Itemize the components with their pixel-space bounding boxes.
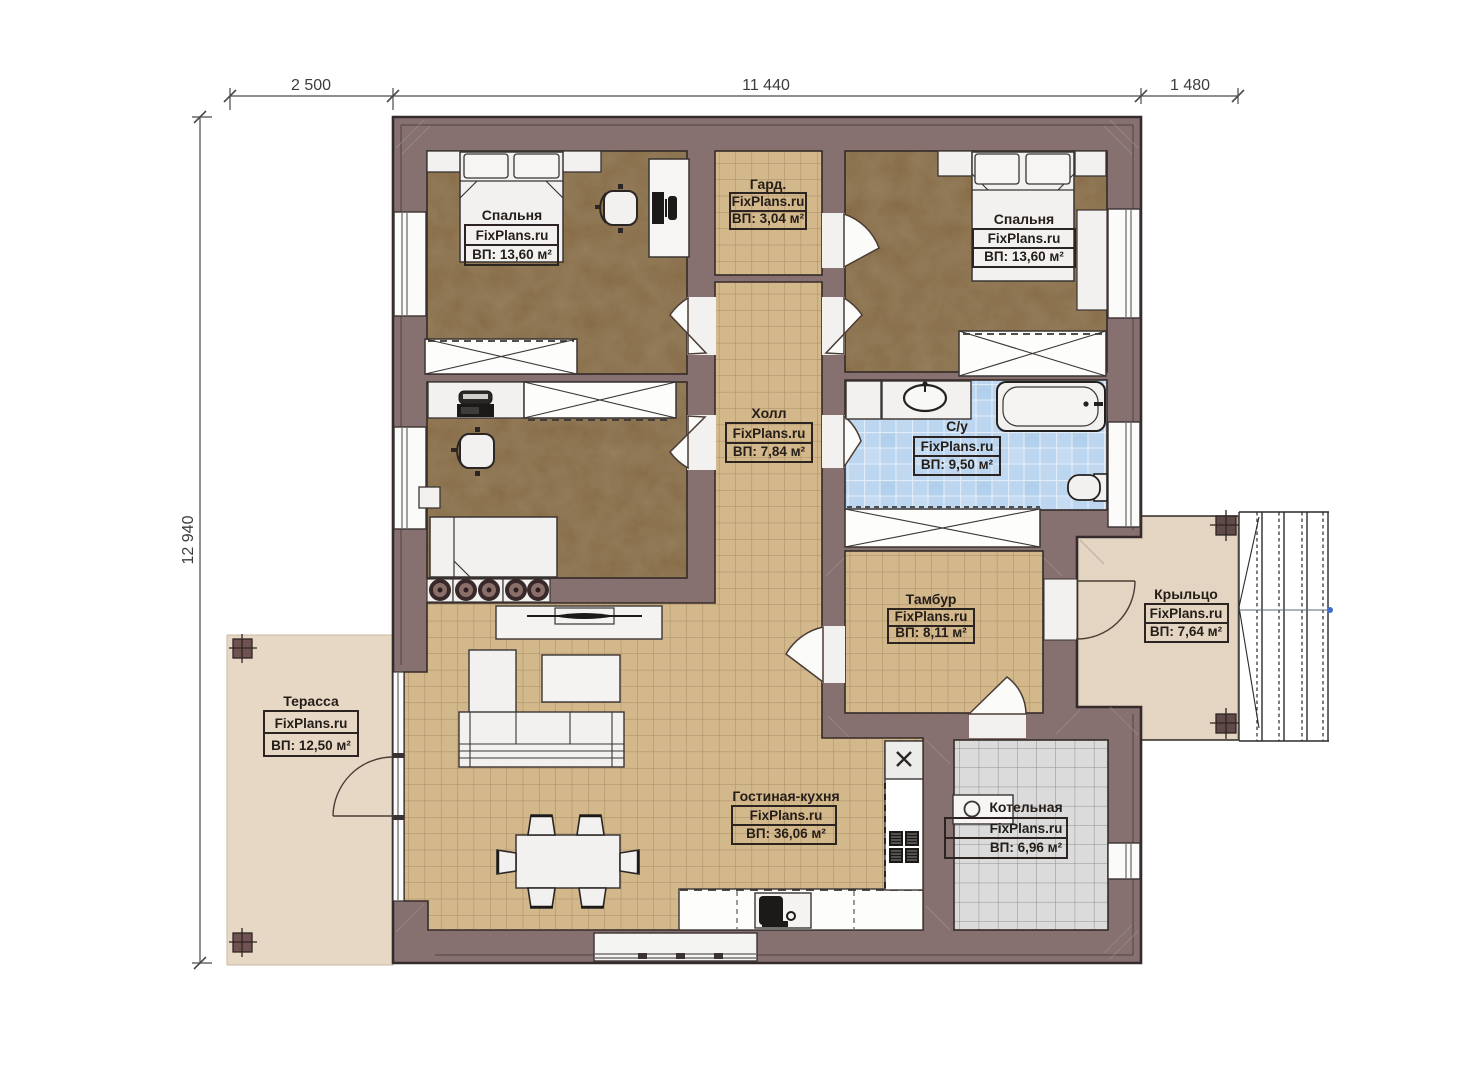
svg-text:Гостиная-кухня: Гостиная-кухня [732,788,839,804]
svg-text:ВП: 12,50 м²: ВП: 12,50 м² [271,738,351,753]
svg-text:Тамбур: Тамбур [906,591,957,607]
svg-text:Котельная: Котельная [989,799,1062,815]
svg-text:Крыльцо: Крыльцо [1154,586,1218,602]
svg-text:ВП: 7,64 м²: ВП: 7,64 м² [1150,624,1223,639]
svg-text:ВП: 36,06 м²: ВП: 36,06 м² [746,826,826,841]
svg-text:2 500: 2 500 [291,77,331,94]
svg-text:ВП: 13,60 м²: ВП: 13,60 м² [472,247,552,262]
svg-text:FixPlans.ru: FixPlans.ru [733,426,806,441]
svg-text:Терасса: Терасса [283,693,339,709]
svg-text:FixPlans.ru: FixPlans.ru [476,228,549,243]
svg-text:FixPlans.ru: FixPlans.ru [921,439,994,454]
svg-text:Спальня: Спальня [482,207,542,223]
svg-text:FixPlans.ru: FixPlans.ru [990,821,1063,836]
svg-text:Холл: Холл [751,405,786,421]
svg-text:12 940: 12 940 [180,515,197,564]
svg-text:FixPlans.ru: FixPlans.ru [732,194,805,209]
svg-text:ВП: 3,04 м²: ВП: 3,04 м² [732,211,805,226]
svg-text:FixPlans.ru: FixPlans.ru [750,808,823,823]
svg-text:ВП: 9,50 м²: ВП: 9,50 м² [921,457,994,472]
svg-text:FixPlans.ru: FixPlans.ru [1150,606,1223,621]
svg-text:11 440: 11 440 [742,77,790,94]
svg-text:ВП: 13,60 м²: ВП: 13,60 м² [984,249,1064,264]
svg-text:Гард.: Гард. [750,176,787,192]
svg-text:FixPlans.ru: FixPlans.ru [275,716,348,731]
svg-text:ВП: 7,84 м²: ВП: 7,84 м² [733,444,806,459]
svg-text:ВП: 8,11 м²: ВП: 8,11 м² [895,625,967,640]
svg-text:С/у: С/у [946,418,968,434]
svg-text:FixPlans.ru: FixPlans.ru [988,231,1061,246]
svg-text:1 480: 1 480 [1170,77,1210,94]
svg-text:FixPlans.ru: FixPlans.ru [895,609,968,624]
svg-text:ВП: 6,96 м²: ВП: 6,96 м² [990,840,1063,855]
svg-text:Спальня: Спальня [994,211,1054,227]
